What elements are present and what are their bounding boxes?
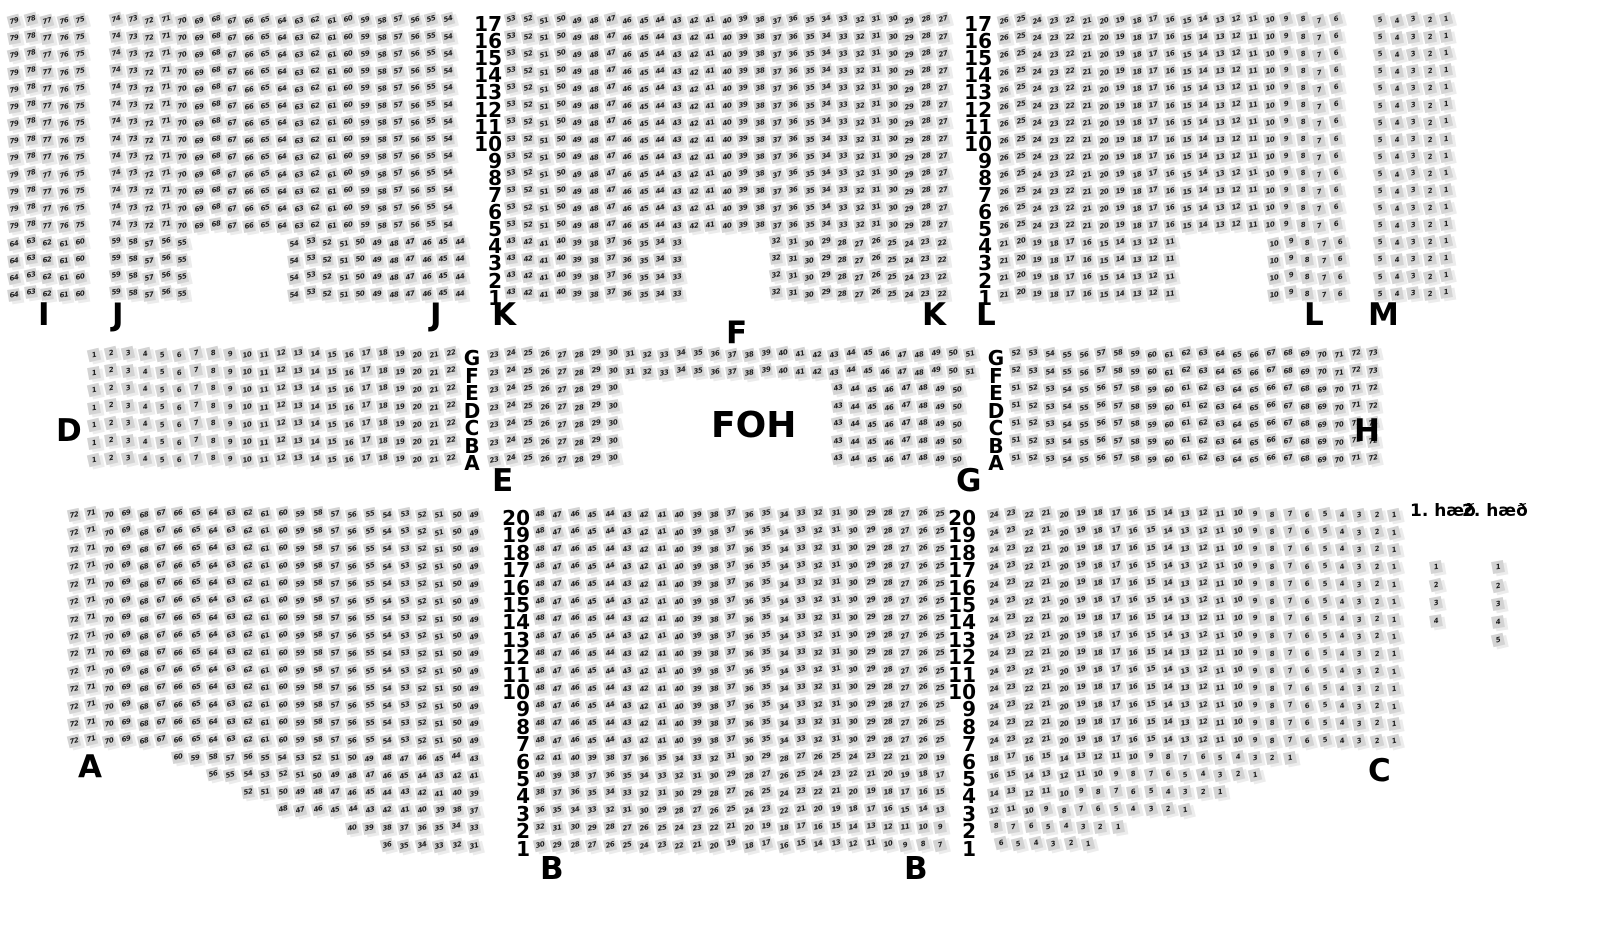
- seat[interactable]: 39: [689, 542, 703, 556]
- seat[interactable]: 15: [1143, 558, 1158, 573]
- seat[interactable]: 73: [126, 218, 140, 232]
- seat[interactable]: 23: [1004, 662, 1019, 677]
- seat[interactable]: 21: [997, 236, 1011, 250]
- seat[interactable]: 16: [1080, 253, 1094, 267]
- seat[interactable]: 23: [1004, 697, 1019, 712]
- seat[interactable]: 33: [467, 821, 481, 835]
- seat[interactable]: 3: [121, 434, 135, 448]
- seat[interactable]: 37: [725, 365, 739, 379]
- seat[interactable]: 39: [690, 612, 704, 626]
- seat[interactable]: 73: [125, 115, 139, 129]
- seat[interactable]: 39: [689, 699, 704, 714]
- seat[interactable]: 42: [637, 717, 651, 731]
- seat[interactable]: 54: [380, 594, 395, 609]
- seat[interactable]: 67: [225, 65, 239, 79]
- seat[interactable]: 50: [449, 559, 464, 574]
- seat[interactable]: 17: [1146, 183, 1160, 197]
- seat[interactable]: 39: [689, 577, 703, 591]
- seat[interactable]: 24: [1030, 116, 1044, 130]
- seat[interactable]: 11: [1213, 559, 1228, 574]
- seat[interactable]: 64: [206, 506, 220, 520]
- seat[interactable]: 44: [848, 452, 862, 466]
- seat[interactable]: 32: [853, 30, 867, 44]
- seat[interactable]: 7: [1283, 716, 1297, 730]
- seat[interactable]: 17: [1108, 592, 1123, 607]
- seat[interactable]: 45: [585, 664, 600, 679]
- seat[interactable]: 8: [1296, 183, 1310, 197]
- seat[interactable]: 65: [258, 47, 273, 62]
- seat[interactable]: 10: [1262, 167, 1277, 182]
- seat[interactable]: 69: [119, 506, 133, 520]
- seat[interactable]: 15: [1179, 13, 1194, 28]
- seat[interactable]: 71: [159, 132, 173, 146]
- seat[interactable]: 7: [1312, 48, 1327, 63]
- seat[interactable]: 5: [1318, 716, 1332, 730]
- seat[interactable]: 65: [258, 184, 272, 198]
- seat[interactable]: 55: [223, 768, 238, 783]
- seat[interactable]: 66: [171, 698, 186, 713]
- seat[interactable]: 28: [881, 541, 895, 555]
- seat[interactable]: 67: [1281, 451, 1295, 465]
- seat[interactable]: 47: [550, 507, 564, 521]
- seat[interactable]: 68: [136, 543, 150, 557]
- seat[interactable]: 59: [1145, 400, 1159, 414]
- seat[interactable]: 38: [753, 167, 768, 182]
- seat[interactable]: 79: [7, 48, 22, 63]
- seat[interactable]: 17: [359, 451, 373, 465]
- seat[interactable]: 59: [358, 167, 373, 182]
- seat[interactable]: 4: [1335, 507, 1349, 521]
- seat[interactable]: 11: [1246, 81, 1260, 95]
- seat[interactable]: 26: [538, 347, 552, 361]
- seat[interactable]: 7: [1312, 151, 1326, 165]
- seat[interactable]: 53: [1043, 452, 1057, 466]
- seat[interactable]: 58: [374, 82, 388, 96]
- seat[interactable]: 46: [568, 542, 582, 556]
- seat[interactable]: 35: [759, 523, 774, 538]
- seat[interactable]: 3: [1429, 596, 1443, 610]
- seat[interactable]: 18: [1130, 185, 1144, 199]
- seat[interactable]: 60: [276, 576, 290, 590]
- seat[interactable]: 50: [353, 235, 367, 249]
- seat[interactable]: 66: [1247, 348, 1261, 362]
- seat[interactable]: 10: [916, 820, 930, 834]
- seat[interactable]: 19: [1113, 201, 1128, 216]
- seat[interactable]: 1: [87, 418, 101, 432]
- seat[interactable]: 29: [863, 540, 877, 554]
- seat[interactable]: 34: [819, 200, 834, 215]
- seat[interactable]: 13: [291, 346, 305, 360]
- seat[interactable]: 72: [142, 117, 156, 131]
- seat[interactable]: 8: [1265, 542, 1279, 556]
- seat[interactable]: 39: [689, 734, 704, 749]
- seat[interactable]: 44: [848, 435, 862, 449]
- seat[interactable]: 54: [380, 647, 394, 661]
- seat[interactable]: 53: [258, 768, 273, 783]
- seat[interactable]: 44: [602, 594, 617, 609]
- seat[interactable]: 55: [424, 63, 438, 77]
- seat[interactable]: 61: [57, 254, 71, 268]
- seat[interactable]: 36: [786, 200, 801, 215]
- seat[interactable]: 5: [1373, 218, 1387, 232]
- seat[interactable]: 16: [1080, 236, 1094, 250]
- seat[interactable]: 55: [362, 559, 377, 574]
- seat[interactable]: 55: [1077, 383, 1091, 397]
- seat[interactable]: 4: [1389, 13, 1404, 28]
- seat[interactable]: 1: [1439, 114, 1453, 128]
- seat[interactable]: 1: [1387, 578, 1401, 592]
- seat[interactable]: 77: [40, 133, 54, 147]
- seat[interactable]: 21: [1039, 662, 1054, 677]
- seat[interactable]: 9: [223, 365, 237, 379]
- seat[interactable]: 26: [997, 82, 1011, 96]
- seat[interactable]: 16: [342, 366, 356, 380]
- seat[interactable]: 39: [736, 149, 750, 163]
- seat[interactable]: 31: [828, 592, 843, 607]
- seat[interactable]: 25: [885, 253, 899, 267]
- seat[interactable]: 77: [40, 201, 55, 216]
- seat[interactable]: 16: [1163, 218, 1177, 232]
- seat[interactable]: 44: [654, 133, 668, 147]
- seat[interactable]: 35: [802, 167, 817, 182]
- seat[interactable]: 27: [898, 663, 913, 678]
- seat[interactable]: 47: [550, 716, 564, 730]
- seat[interactable]: 28: [572, 383, 586, 397]
- seat[interactable]: 61: [1179, 416, 1193, 430]
- seat[interactable]: 23: [1047, 219, 1061, 233]
- seat[interactable]: 16: [1126, 698, 1141, 713]
- seat[interactable]: 63: [292, 66, 306, 80]
- seat[interactable]: 17: [1004, 749, 1018, 763]
- seat[interactable]: 46: [878, 365, 892, 379]
- seat[interactable]: 1: [1387, 560, 1402, 575]
- seat[interactable]: 34: [819, 217, 833, 231]
- seat[interactable]: 65: [1230, 365, 1244, 379]
- seat[interactable]: 46: [567, 524, 582, 539]
- seat[interactable]: 16: [916, 785, 930, 799]
- seat[interactable]: 74: [109, 132, 123, 146]
- seat[interactable]: 63: [292, 219, 306, 233]
- seat[interactable]: 37: [724, 680, 738, 694]
- seat[interactable]: 71: [1349, 381, 1363, 395]
- seat[interactable]: 51: [432, 613, 446, 627]
- seat[interactable]: 3: [1406, 200, 1421, 215]
- seat[interactable]: 3: [1352, 595, 1367, 610]
- seat[interactable]: 32: [853, 184, 867, 198]
- seat[interactable]: 32: [853, 133, 867, 147]
- seat[interactable]: 51: [293, 768, 308, 783]
- seat[interactable]: 10: [1263, 64, 1277, 78]
- seat[interactable]: 53: [1043, 400, 1057, 414]
- seat[interactable]: 72: [67, 664, 82, 679]
- seat[interactable]: 23: [1047, 82, 1061, 96]
- seat[interactable]: 4: [1429, 615, 1443, 629]
- seat[interactable]: 71: [1332, 348, 1346, 362]
- seat[interactable]: 33: [657, 348, 671, 362]
- seat[interactable]: 48: [533, 524, 548, 539]
- seat[interactable]: 40: [720, 150, 734, 164]
- seat[interactable]: 50: [450, 682, 464, 696]
- seat[interactable]: 14: [1196, 166, 1211, 181]
- seat[interactable]: 35: [803, 81, 817, 95]
- seat[interactable]: 47: [550, 734, 565, 749]
- seat[interactable]: 14: [1196, 98, 1210, 112]
- seat[interactable]: 4: [1335, 716, 1349, 730]
- seat[interactable]: 26: [916, 576, 930, 590]
- seat[interactable]: 10: [240, 365, 254, 379]
- seat[interactable]: 69: [1298, 347, 1312, 361]
- seat[interactable]: 62: [241, 698, 256, 713]
- seat[interactable]: 22: [1063, 47, 1078, 62]
- seat[interactable]: 1: [1439, 11, 1454, 26]
- seat[interactable]: 15: [325, 417, 339, 431]
- seat[interactable]: 30: [886, 183, 900, 197]
- seat[interactable]: 22: [1022, 578, 1036, 592]
- seat[interactable]: 16: [987, 769, 1002, 784]
- seat[interactable]: 79: [7, 134, 21, 148]
- seat[interactable]: 51: [537, 168, 552, 183]
- seat[interactable]: 61: [325, 133, 339, 147]
- seat[interactable]: 63: [224, 645, 238, 659]
- seat[interactable]: 4: [1335, 629, 1350, 644]
- seat[interactable]: 67: [1281, 416, 1295, 430]
- seat[interactable]: 9: [1248, 698, 1263, 713]
- seat[interactable]: 66: [1264, 433, 1278, 447]
- seat[interactable]: 4: [1389, 116, 1403, 130]
- seat[interactable]: 55: [176, 287, 190, 301]
- seat[interactable]: 64: [206, 593, 221, 608]
- seat[interactable]: 47: [550, 559, 565, 574]
- seat[interactable]: 52: [520, 81, 534, 95]
- seat[interactable]: 54: [380, 559, 395, 574]
- seat[interactable]: 41: [537, 288, 551, 302]
- seat[interactable]: 21: [1080, 201, 1095, 216]
- seat[interactable]: 8: [1295, 166, 1310, 181]
- seat[interactable]: 69: [192, 219, 206, 233]
- seat[interactable]: 61: [258, 576, 272, 590]
- seat[interactable]: 68: [1298, 417, 1312, 431]
- seat[interactable]: 72: [67, 647, 81, 661]
- seat[interactable]: 49: [370, 253, 384, 267]
- seat[interactable]: 14: [308, 417, 322, 431]
- seat[interactable]: 25: [521, 434, 535, 448]
- seat[interactable]: 48: [533, 507, 547, 521]
- seat[interactable]: 10: [1230, 523, 1245, 538]
- seat[interactable]: 13: [1178, 559, 1193, 574]
- seat[interactable]: 48: [916, 399, 930, 413]
- seat[interactable]: 1: [1439, 97, 1453, 111]
- seat[interactable]: 41: [703, 13, 718, 28]
- seat[interactable]: 45: [585, 682, 599, 696]
- seat[interactable]: 21: [724, 819, 738, 833]
- seat[interactable]: 7: [1283, 698, 1298, 713]
- seat[interactable]: 65: [189, 645, 203, 659]
- seat[interactable]: 40: [554, 251, 568, 265]
- seat[interactable]: 28: [919, 11, 934, 26]
- seat[interactable]: 40: [568, 751, 582, 765]
- seat[interactable]: 5: [1491, 633, 1505, 647]
- seat[interactable]: 50: [450, 577, 464, 591]
- seat[interactable]: 66: [242, 100, 256, 114]
- seat[interactable]: 2: [1423, 30, 1437, 44]
- seat[interactable]: 20: [1056, 525, 1071, 540]
- seat[interactable]: 34: [777, 613, 791, 627]
- seat[interactable]: 20: [410, 417, 424, 431]
- seat[interactable]: 14: [1196, 64, 1210, 78]
- seat[interactable]: 45: [637, 202, 652, 217]
- seat[interactable]: 70: [175, 48, 190, 63]
- seat[interactable]: 9: [1279, 217, 1293, 231]
- seat[interactable]: 44: [653, 64, 667, 78]
- seat[interactable]: 63: [224, 680, 238, 694]
- seat[interactable]: 45: [637, 100, 651, 114]
- seat[interactable]: 32: [811, 576, 825, 590]
- seat[interactable]: 24: [672, 821, 686, 835]
- seat[interactable]: 42: [637, 734, 652, 749]
- seat[interactable]: 30: [606, 416, 620, 430]
- seat[interactable]: 18: [1047, 254, 1061, 268]
- seat[interactable]: 64: [7, 270, 21, 284]
- seat[interactable]: 7: [1312, 66, 1326, 80]
- seat[interactable]: 70: [175, 31, 189, 45]
- seat[interactable]: 59: [109, 268, 123, 282]
- seat[interactable]: 47: [550, 542, 564, 556]
- seat[interactable]: 60: [1162, 383, 1176, 397]
- seat[interactable]: 18: [376, 451, 390, 465]
- seat[interactable]: 78: [24, 183, 38, 197]
- seat[interactable]: 10: [1262, 13, 1277, 28]
- seat[interactable]: 14: [1161, 698, 1176, 713]
- seat[interactable]: 52: [415, 716, 429, 730]
- seat[interactable]: 22: [881, 750, 895, 764]
- seat[interactable]: 26: [915, 628, 930, 643]
- seat[interactable]: 12: [1229, 63, 1243, 77]
- seat[interactable]: 24: [987, 630, 1002, 645]
- seat[interactable]: 19: [724, 836, 739, 851]
- seat[interactable]: 62: [308, 13, 323, 28]
- seat[interactable]: 56: [345, 734, 360, 749]
- seat[interactable]: 29: [902, 66, 916, 80]
- seat[interactable]: 65: [1247, 453, 1261, 467]
- seat[interactable]: 62: [241, 611, 255, 625]
- seat[interactable]: 57: [142, 288, 156, 302]
- seat[interactable]: 40: [672, 543, 686, 557]
- seat[interactable]: 58: [126, 252, 140, 266]
- seat[interactable]: 69: [119, 662, 134, 677]
- seat[interactable]: 66: [242, 185, 256, 199]
- seat[interactable]: 26: [916, 506, 930, 520]
- seat[interactable]: 13: [1213, 81, 1227, 95]
- seat[interactable]: 15: [1179, 167, 1194, 182]
- seat[interactable]: 46: [620, 82, 634, 96]
- seat[interactable]: 41: [703, 167, 718, 182]
- seat[interactable]: 17: [1146, 115, 1160, 129]
- seat[interactable]: 70: [1332, 436, 1346, 450]
- seat[interactable]: 8: [1300, 236, 1314, 250]
- seat[interactable]: 42: [533, 751, 547, 765]
- seat[interactable]: 21: [1039, 627, 1054, 642]
- seat[interactable]: 8: [1056, 804, 1071, 819]
- seat[interactable]: 31: [869, 11, 884, 26]
- seat[interactable]: 32: [811, 558, 826, 573]
- seat[interactable]: 2: [1422, 13, 1437, 28]
- seat[interactable]: 25: [829, 749, 843, 763]
- seat[interactable]: 6: [1300, 664, 1315, 679]
- seat[interactable]: 10: [1267, 236, 1281, 250]
- seat[interactable]: 10: [1230, 628, 1245, 643]
- seat[interactable]: 67: [1281, 381, 1295, 395]
- seat[interactable]: 23: [1004, 540, 1018, 554]
- seat[interactable]: 20: [1057, 613, 1071, 627]
- seat[interactable]: 36: [741, 664, 756, 679]
- seat[interactable]: 5: [155, 382, 169, 396]
- seat[interactable]: 26: [915, 663, 930, 678]
- seat[interactable]: 14: [1161, 576, 1175, 590]
- seat[interactable]: 29: [589, 433, 603, 447]
- seat[interactable]: 5: [1317, 698, 1332, 713]
- seat[interactable]: 4: [138, 417, 152, 431]
- seat[interactable]: 10: [1230, 541, 1244, 555]
- seat[interactable]: 27: [555, 347, 569, 361]
- seat[interactable]: 72: [67, 525, 82, 540]
- seat[interactable]: 29: [902, 151, 916, 165]
- seat[interactable]: 32: [533, 820, 547, 834]
- seat[interactable]: 40: [672, 508, 686, 522]
- seat[interactable]: 55: [363, 681, 377, 695]
- seat[interactable]: 34: [637, 769, 652, 784]
- seat[interactable]: 56: [1094, 416, 1108, 430]
- seat[interactable]: 4: [1335, 664, 1350, 679]
- seat[interactable]: 33: [794, 645, 808, 659]
- seat[interactable]: 77: [40, 185, 54, 199]
- seat[interactable]: 32: [811, 663, 826, 678]
- seat[interactable]: 43: [831, 381, 845, 395]
- seat[interactable]: 34: [819, 183, 833, 197]
- seat[interactable]: 79: [7, 31, 21, 45]
- seat[interactable]: 53: [303, 234, 317, 248]
- seat[interactable]: 37: [770, 133, 784, 147]
- seat[interactable]: 41: [793, 365, 807, 379]
- seat[interactable]: 62: [1179, 346, 1193, 360]
- seat[interactable]: 12: [1195, 523, 1210, 538]
- seat[interactable]: 31: [689, 768, 704, 783]
- seat[interactable]: 43: [620, 734, 635, 749]
- seat[interactable]: 5: [155, 435, 169, 449]
- seat[interactable]: 64: [275, 150, 289, 164]
- seat[interactable]: 28: [919, 200, 934, 215]
- seat[interactable]: 64: [206, 680, 220, 694]
- seat[interactable]: 9: [1248, 628, 1263, 643]
- seat[interactable]: 3: [121, 399, 135, 413]
- seat[interactable]: 13: [291, 381, 305, 395]
- seat[interactable]: 3: [1406, 286, 1420, 300]
- seat[interactable]: 55: [175, 270, 189, 284]
- seat[interactable]: 47: [550, 647, 564, 661]
- seat[interactable]: 12: [1195, 628, 1210, 643]
- seat[interactable]: 53: [397, 733, 412, 748]
- seat[interactable]: 33: [836, 218, 850, 232]
- seat[interactable]: 8: [1296, 115, 1310, 129]
- seat[interactable]: 31: [786, 286, 800, 300]
- seat[interactable]: 59: [1145, 452, 1159, 466]
- seat[interactable]: 69: [119, 697, 134, 712]
- seat[interactable]: 71: [1332, 366, 1346, 380]
- seat[interactable]: 53: [398, 681, 412, 695]
- seat[interactable]: 17: [1109, 697, 1124, 712]
- seat[interactable]: 11: [1213, 716, 1227, 730]
- seat[interactable]: 8: [1296, 218, 1310, 232]
- seat[interactable]: 29: [863, 732, 878, 747]
